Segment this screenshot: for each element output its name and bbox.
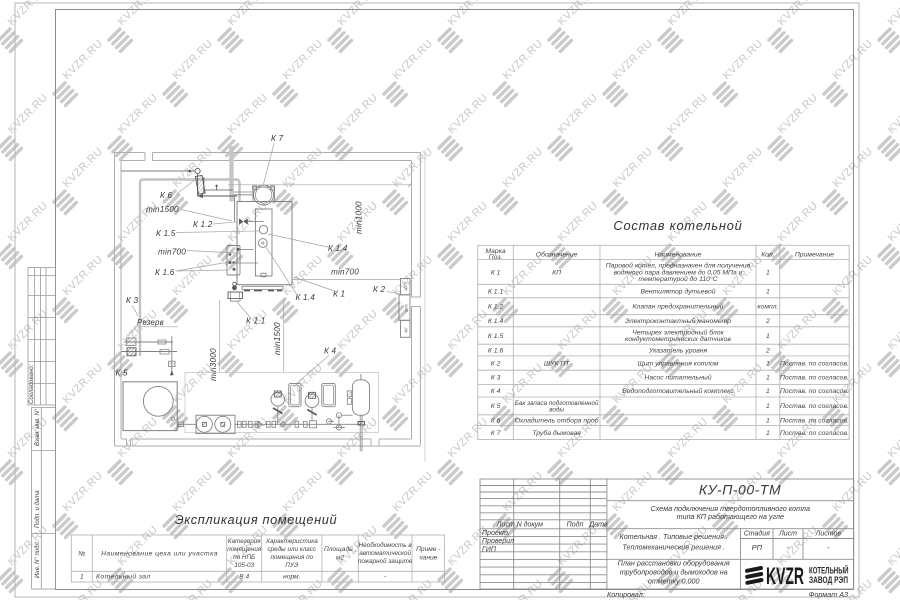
svg-text:Поз.: Поз. [489,254,503,261]
svg-text:К 2: К 2 [373,285,386,294]
svg-text:1: 1 [766,388,770,395]
svg-text:по НПБ: по НПБ [233,554,255,561]
svg-text:Резерв: Резерв [137,318,164,327]
svg-text:К 2: К 2 [491,360,501,367]
svg-text:Водоподготовительный комплекс: Водоподготовительный комплекс [622,387,734,395]
svg-text:Труба дымовая: Труба дымовая [532,429,581,437]
svg-text:КУ-П-00-ТМ: КУ-П-00-ТМ [699,482,781,498]
svg-text:1: 1 [766,288,770,295]
svg-text:Вентилятор дутьевой: Вентилятор дутьевой [640,287,715,295]
svg-text:пожарной защите: пожарной защите [358,557,413,565]
svg-text:Тепломеханические решения .: Тепломеханические решения . [622,543,725,552]
svg-text:Категория: Категория [228,538,262,545]
svg-text:Подп. и дата: Подп. и дата [35,490,41,528]
svg-text:Клапан предохранительный: Клапан предохранительный [633,303,724,311]
svg-text:Экспликация помещений: Экспликация помещений [175,512,337,527]
svg-text:К 1.4: К 1.4 [328,244,348,253]
svg-text:Котельный зал: Котельный зал [96,573,151,581]
svg-text:min1500: min1500 [273,322,282,355]
svg-text:Стадия: Стадия [744,530,770,538]
svg-text:К 3: К 3 [126,296,139,305]
svg-text:2: 2 [765,318,770,325]
svg-text:Паровой котел, предназначен дл: Паровой котел, предназначен для получени… [606,261,751,269]
svg-text:компл.: компл. [757,304,778,311]
svg-text:К 1.4: К 1.4 [488,318,504,325]
svg-text:К 1.2: К 1.2 [488,304,504,311]
svg-text:min1500: min1500 [146,205,179,214]
svg-text:К 1.5: К 1.5 [488,333,504,340]
svg-text:ПУЭ: ПУЭ [285,562,299,569]
svg-text:План расстановки оборудования: План расстановки оборудования [618,559,730,568]
svg-text:кондуктометрических датчиков: кондуктометрических датчиков [625,335,731,343]
svg-text:К 4: К 4 [324,347,337,356]
svg-text:К 6: К 6 [160,191,173,200]
svg-text:К 7: К 7 [491,430,501,437]
svg-text:Лист N докум: Лист N докум [496,521,544,529]
svg-text:Необходимость в: Необходимость в [359,541,413,549]
svg-text:1: 1 [766,269,770,276]
svg-text:КП: КП [552,269,561,276]
svg-text:Указатель уровня: Указатель уровня [648,347,708,354]
svg-text:среды или класс: среды или класс [268,545,317,553]
svg-text:КОТЕЛЬНЫЙ: КОТЕЛЬНЫЙ [809,565,849,576]
svg-text:К 5: К 5 [491,403,501,410]
svg-text:Примечание: Примечание [795,252,834,259]
svg-text:Взам. инв. N°: Взам. инв. N° [35,408,41,446]
svg-text:Приме -: Приме - [416,546,441,553]
svg-text:типа КП работающего на угле: типа КП работающего на угле [677,512,784,521]
svg-text:К 1.6: К 1.6 [155,268,175,277]
svg-text:Постав. по согласов.: Постав. по согласов. [780,403,849,410]
svg-text:ШУК ПТ: ШУК ПТ [544,360,570,367]
svg-text:1: 1 [766,403,770,410]
svg-text:помещения: помещения [227,546,262,553]
svg-text:К 3: К 3 [491,375,501,382]
svg-text:норм.: норм. [283,574,300,581]
svg-text:2: 2 [765,347,770,354]
svg-text:Листов: Листов [815,531,842,538]
svg-text:Обозначение: Обозначение [536,251,578,259]
svg-text:ГИП: ГИП [482,547,497,554]
svg-text:К 7: К 7 [271,134,284,143]
svg-text:К 1.1: К 1.1 [488,288,504,295]
svg-text:Формат А3: Формат А3 [809,590,848,599]
svg-text:температурой до 110°С: температурой до 110°С [638,275,717,283]
svg-text:Проект.: Проект. [482,530,510,537]
svg-text:Состав котельной: Состав котельной [613,218,742,233]
svg-text:min3000: min3000 [209,348,218,381]
svg-text:Характеристика: Характеристика [265,538,318,545]
svg-text:автоматической: автоматической [359,549,411,557]
svg-text:помещения по: помещения по [270,554,313,561]
svg-text:Подп: Подп [567,521,584,529]
svg-text:Постав. по согласов.: Постав. по согласов. [780,430,849,437]
svg-text:К 1.2: К 1.2 [193,220,213,229]
svg-text:Наименование: Наименование [655,252,702,259]
svg-text:Щит управления котлом: Щит управления котлом [637,360,718,367]
svg-text:1: 1 [766,360,770,367]
svg-text:Охладитель отбора проб: Охладитель отбора проб [515,417,600,425]
svg-text:min700: min700 [158,248,186,257]
svg-text:Электроконтактный манометр: Электроконтактный манометр [625,317,731,325]
svg-text:Кол.: Кол. [761,252,774,259]
svg-text:Котельная . Типовые решения .: Котельная . Типовые решения . [619,532,727,541]
svg-text:В 4: В 4 [239,574,249,581]
svg-text:1: 1 [766,430,770,437]
svg-text:№: № [78,551,85,558]
svg-text:Постав. по согласов.: Постав. по согласов. [780,388,849,395]
svg-text:чание: чание [419,555,437,562]
svg-text:Насос питательный: Насос питательный [644,374,711,382]
svg-text:РП: РП [752,543,763,552]
svg-text:К 1.5: К 1.5 [156,229,176,238]
svg-text:Лист: Лист [778,531,797,538]
svg-text:К 1: К 1 [491,269,501,276]
svg-text:Копировал:: Копировал: [607,590,645,599]
svg-text:105-03: 105-03 [234,562,254,569]
svg-text:1: 1 [766,418,770,425]
svg-text:К 1.1: К 1.1 [246,317,265,326]
svg-text:1: 1 [766,375,770,382]
svg-text:К 1.6: К 1.6 [488,347,504,354]
svg-text:К 4: К 4 [491,388,501,395]
svg-text:м2: м2 [336,555,345,562]
svg-text:К 5: К 5 [116,369,129,378]
svg-text:воды: воды [549,406,564,414]
svg-text:ШУК: ШУК [405,303,409,312]
svg-text:Площадь ,: Площадь , [324,545,356,553]
svg-text:min700: min700 [331,268,359,277]
svg-text:KVZR: KVZR [766,563,804,590]
svg-text:К 6: К 6 [491,418,501,425]
svg-text:водяного пара давлением до 0,0: водяного пара давлением до 0,05 МПа и [614,268,743,276]
svg-text:ЩУПТ: ЩУПТ [404,280,408,290]
svg-text:Четырех электродный блок: Четырех электродный блок [632,328,724,336]
svg-text:трубопроводов и дымоходов на: трубопроводов и дымоходов на [620,568,728,577]
svg-text:Согласовано:: Согласовано: [28,364,35,404]
svg-text:Инв. N° подл.: Инв. N° подл. [35,541,41,578]
svg-text:Постав. по согласов.: Постав. по согласов. [780,375,849,382]
svg-text:Проверил: Проверил [482,538,514,545]
svg-text:Постав. по согласов.: Постав. по согласов. [780,418,849,425]
svg-text:Наименование цеха или участка: Наименование цеха или участка [101,551,218,558]
svg-text:отметку 0,000: отметку 0,000 [648,577,700,586]
svg-text:1: 1 [80,574,84,581]
svg-text:К 1.4: К 1.4 [296,293,316,302]
svg-text:Постав. по согласов.: Постав. по согласов. [780,360,849,367]
svg-text:Дата: Дата [588,522,608,529]
svg-text:min1000: min1000 [355,201,364,234]
svg-text:ЗАВОД РЭП: ЗАВОД РЭП [809,575,848,585]
svg-text:1: 1 [766,333,770,340]
